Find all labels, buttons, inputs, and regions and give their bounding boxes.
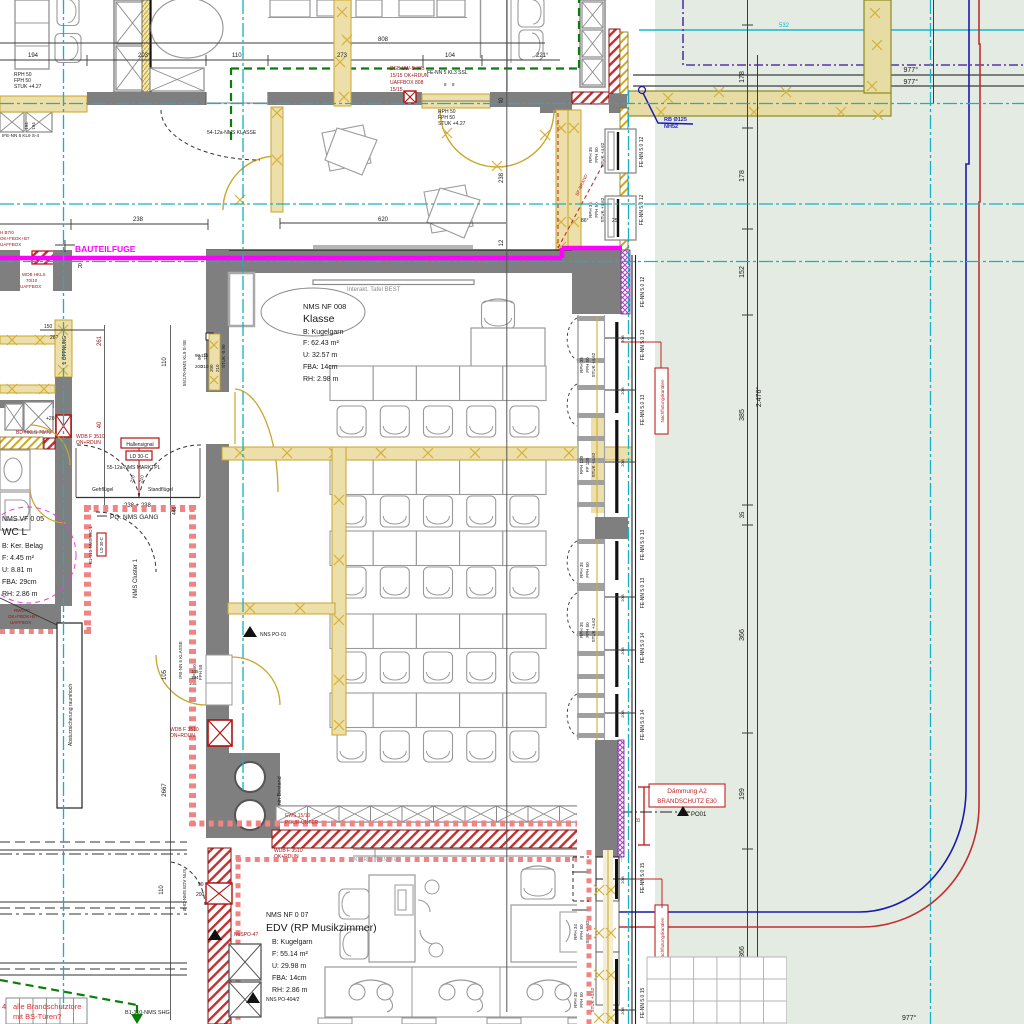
svg-text:105: 105 <box>162 669 168 680</box>
svg-text:Nachflutungskanälen: Nachflutungskanälen <box>660 379 665 422</box>
svg-text:Interakt. Tafel BEST: Interakt. Tafel BEST <box>347 287 401 293</box>
svg-text:STUK +4.62: STUK +4.62 <box>600 197 605 222</box>
svg-text:104: 104 <box>445 53 456 59</box>
svg-text:Klasse: Klasse <box>303 313 335 325</box>
svg-text:FE-NN 5.0 15: FE-NN 5.0 15 <box>640 863 646 894</box>
svg-text:B1-110-NMS SHG: B1-110-NMS SHG <box>125 1010 170 1016</box>
svg-text:152: 152 <box>739 266 746 278</box>
svg-text:UAFFBOX: UAFFBOX <box>20 284 41 289</box>
svg-text:FPH 50: FPH 50 <box>198 664 203 680</box>
svg-text:20|8: 20|8 <box>621 387 625 394</box>
svg-text:20|8: 20|8 <box>621 1007 625 1014</box>
svg-text:FBA: 29cm: FBA: 29cm <box>2 579 37 586</box>
svg-text:40: 40 <box>97 421 103 428</box>
svg-text:STUK +4.62: STUK +4.62 <box>600 142 605 167</box>
svg-text:BRANDSCHUTZ E30: BRANDSCHUTZ E30 <box>657 798 717 805</box>
svg-text:B: Ker. Belag: B: Ker. Belag <box>2 543 43 550</box>
svg-text:OK+FBOK+B7: OK+FBOK+B7 <box>0 236 30 241</box>
svg-text:RH: 2.86 m: RH: 2.86 m <box>2 591 38 598</box>
svg-text:200: 200 <box>196 892 205 898</box>
svg-text:NMS NF 0 07: NMS NF 0 07 <box>266 912 309 919</box>
svg-text:U: 8.81 m: U: 8.81 m <box>2 567 33 574</box>
svg-text:FPH 50: FPH 50 <box>585 357 590 373</box>
svg-text:261: 261 <box>97 335 103 346</box>
svg-text:UNTERK. TÜRN M ED: UNTERK. TÜRN M ED <box>350 856 401 863</box>
svg-text:110: 110 <box>232 53 242 59</box>
svg-text:ON+RDUN: ON+RDUN <box>170 733 195 739</box>
svg-text:NNS PO-01: NNS PO-01 <box>260 632 287 638</box>
svg-text:STUK +4.27: STUK +4.27 <box>14 84 42 90</box>
svg-text:UAFFBOX 808: UAFFBOX 808 <box>390 80 424 86</box>
svg-text:238 + 238: 238 + 238 <box>124 503 152 509</box>
svg-text:FPH 50: FPH 50 <box>585 562 590 578</box>
svg-text:Standflügel: Standflügel <box>148 487 173 493</box>
svg-text:90: 90 <box>195 353 201 358</box>
svg-text:EDV (RP Musikzimmer): EDV (RP Musikzimmer) <box>266 922 377 934</box>
svg-text:55-12a-NMS MARKTPL: 55-12a-NMS MARKTPL <box>107 465 161 471</box>
svg-text:221°: 221° <box>536 53 549 59</box>
svg-text:DSB UW-B-WB: DSB UW-B-WB <box>390 66 425 72</box>
svg-text:FBA: 14cm: FBA: 14cm <box>272 975 307 982</box>
svg-text:FPH 50: FPH 50 <box>579 924 584 940</box>
svg-text:35: 35 <box>740 511 746 518</box>
svg-text:+20: +20 <box>46 416 55 422</box>
svg-text:194: 194 <box>28 53 39 59</box>
svg-text:20|8: 20|8 <box>621 335 625 342</box>
svg-text:FPH 50: FPH 50 <box>585 622 590 638</box>
svg-text:R: R <box>78 264 83 270</box>
svg-text:200: 200 <box>209 364 214 372</box>
svg-text:NMS NF 008: NMS NF 008 <box>303 302 346 311</box>
svg-text:RB Ø125: RB Ø125 <box>664 117 687 123</box>
svg-text:BD HKLS 70/70: BD HKLS 70/70 <box>16 430 52 436</box>
svg-text:199: 199 <box>739 788 746 800</box>
svg-text:1 ÖFFNUNG: 1 ÖFFNUNG <box>61 335 68 364</box>
svg-text:FE-NN 5.0 12: FE-NN 5.0 12 <box>640 277 646 308</box>
svg-text:4: 4 <box>2 1002 6 1011</box>
svg-text:FE-NN 5.0 14: FE-NN 5.0 14 <box>640 710 646 741</box>
svg-text:238: 238 <box>499 172 505 183</box>
svg-text:U: 29.98 m: U: 29.98 m <box>272 963 306 970</box>
svg-text:26?: 26? <box>50 335 59 341</box>
svg-text:178: 178 <box>739 170 746 182</box>
svg-text:FE-NN 5.0 13: FE-NN 5.0 13 <box>640 530 646 561</box>
svg-text:70/10: 70/10 <box>26 278 38 283</box>
svg-text:FP 120: FP 120 <box>585 457 590 472</box>
svg-text:110: 110 <box>162 357 168 367</box>
svg-text:SIUK +4.62: SIUK +4.62 <box>585 920 590 944</box>
svg-text:15/15 OK+RDUN: 15/15 OK+RDUN <box>390 73 429 79</box>
svg-text:2667: 2667 <box>162 783 168 797</box>
svg-text:WC L: WC L <box>2 527 27 538</box>
svg-text:20|8: 20|8 <box>621 647 625 654</box>
svg-text:110: 110 <box>201 353 209 358</box>
svg-text:LD 30-C: LD 30-C <box>130 454 149 460</box>
svg-text:150: 150 <box>44 324 53 330</box>
svg-text:FE-NN 5.0 13: FE-NN 5.0 13 <box>640 578 646 609</box>
svg-text:178: 178 <box>739 71 746 83</box>
svg-text:FE-NN 5.0 12: FE-NN 5.0 12 <box>640 330 646 361</box>
svg-text:UAFFBOX: UAFFBOX <box>0 242 21 247</box>
svg-text:15/15: 15/15 <box>390 87 403 93</box>
svg-text:203°: 203° <box>138 53 151 59</box>
svg-text:B: Kugelgarn: B: Kugelgarn <box>272 939 313 946</box>
svg-text:STUK +4.62: STUK +4.62 <box>591 452 596 477</box>
svg-text:20|8: 20|8 <box>621 459 625 466</box>
svg-text:BAUTEILFUGE: BAUTEILFUGE <box>75 244 136 254</box>
svg-text:F: 4.45 m²: F: 4.45 m² <box>2 555 35 562</box>
svg-text:273: 273 <box>337 53 348 59</box>
svg-text:977°: 977° <box>904 78 919 86</box>
svg-text:194: 194 <box>24 122 29 130</box>
svg-text:FPH 50: FPH 50 <box>594 147 599 163</box>
svg-text:RH: 2.86 m: RH: 2.86 m <box>272 987 308 994</box>
svg-text:B: Kugelgarn: B: Kugelgarn <box>303 329 344 336</box>
svg-text:20|8: 20|8 <box>621 594 625 601</box>
svg-text:12: 12 <box>499 239 505 246</box>
svg-text:NuSPO-4?: NuSPO-4? <box>234 932 258 938</box>
svg-text:RPH 35: RPH 35 <box>573 992 578 1008</box>
svg-text:105: 105 <box>191 669 199 674</box>
svg-text:194: 194 <box>31 122 36 130</box>
svg-text:977°: 977° <box>902 1014 917 1022</box>
svg-text:alle Brandschutztore: alle Brandschutztore <box>13 1002 81 1011</box>
svg-text:mit BS-Türen?: mit BS-Türen? <box>13 1012 61 1021</box>
svg-text:55/170-NMS KL9 S-SE: 55/170-NMS KL9 S-SE <box>182 340 187 386</box>
svg-text:RPH 35: RPH 35 <box>579 357 584 373</box>
svg-text:Dämmung A2: Dämmung A2 <box>667 788 707 795</box>
svg-text:PO01: PO01 <box>691 812 707 818</box>
svg-text:WDB HKLS: WDB HKLS <box>22 272 46 277</box>
svg-text:OK+FBOK+B?: OK+FBOK+B? <box>8 614 38 619</box>
svg-text:STUK -0.90: STUK -0.90 <box>221 344 226 368</box>
svg-text:Absturzsicherung raumhoch: Absturzsicherung raumhoch <box>68 684 74 746</box>
svg-text:STUK +4.62: STUK +4.62 <box>590 987 595 1012</box>
svg-text:RPH 34: RPH 34 <box>573 924 578 940</box>
svg-text:UAFFBOX: UAFFBOX <box>10 620 31 625</box>
svg-text:PQ. NMS GANG: PQ. NMS GANG <box>110 514 158 521</box>
svg-text:90: 90 <box>198 882 204 888</box>
svg-text:20|8: 20|8 <box>621 876 625 883</box>
svg-text:RPH 35: RPH 35 <box>579 562 584 578</box>
svg-text:210: 210 <box>201 364 209 369</box>
svg-text:FBA: 14cm: FBA: 14cm <box>303 364 338 371</box>
svg-text:RH: 2.98 m: RH: 2.98 m <box>303 376 339 383</box>
svg-text:FE-NN 5.0 13: FE-NN 5.0 13 <box>640 395 646 426</box>
svg-text:110: 110 <box>159 885 165 895</box>
svg-text:B1-110-NMS WC L: B1-110-NMS WC L <box>88 525 93 564</box>
svg-text:366: 366 <box>739 946 746 958</box>
svg-text:366: 366 <box>739 629 746 641</box>
svg-text:385: 385 <box>739 409 746 421</box>
svg-text:20|8: 20|8 <box>621 710 625 717</box>
svg-text:FPH 50: FPH 50 <box>579 992 584 1008</box>
svg-text:U: 32.57 m: U: 32.57 m <box>303 352 337 359</box>
svg-text:Nachflutungskanälen: Nachflutungskanälen <box>660 917 665 960</box>
svg-text:RPH 120: RPH 120 <box>579 455 584 474</box>
svg-text:F: 55.14 m²: F: 55.14 m² <box>272 951 308 958</box>
svg-text:RPH 35: RPH 35 <box>579 622 584 638</box>
svg-text:B: B <box>636 818 642 822</box>
svg-text:808: 808 <box>378 37 389 43</box>
svg-text:54-12a-NMS KLASSE: 54-12a-NMS KLASSE <box>207 130 257 136</box>
svg-text:25: 25 <box>612 218 618 224</box>
svg-text:EWS 15/10: EWS 15/10 <box>285 813 311 819</box>
svg-text:F: 62.43 m²: F: 62.43 m² <box>303 340 339 347</box>
svg-text:86°: 86° <box>581 218 589 224</box>
svg-text:FE-NN 5.0 15: FE-NN 5.0 15 <box>640 988 646 1019</box>
svg-text:620: 620 <box>378 217 389 223</box>
svg-text:Hallensignal: Hallensignal <box>126 442 153 448</box>
svg-text:446: 446 <box>172 506 178 515</box>
svg-text:NMS Cluster 1: NMS Cluster 1 <box>133 558 139 598</box>
svg-text:H B7/0: H B7/0 <box>0 230 14 235</box>
svg-text:FE-NN 5.0 12: FE-NN 5.0 12 <box>639 137 645 168</box>
svg-text:194: 194 <box>191 675 199 680</box>
svg-text:NH52: NH52 <box>664 124 678 130</box>
svg-text:IFE-NN 5 KL9 S-4: IFE-NN 5 KL9 S-4 <box>2 133 39 138</box>
svg-text:FE-NN 5.0 12: FE-NN 5.0 12 <box>639 195 645 226</box>
svg-text:Gehflügel: Gehflügel <box>92 487 113 493</box>
svg-text:2.476°: 2.476° <box>755 387 763 408</box>
svg-text:IFB-NN 5 KLASSE: IFB-NN 5 KLASSE <box>178 641 183 679</box>
svg-text:STUK +4.62: STUK +4.62 <box>591 617 596 642</box>
svg-text:STUK +4.62: STUK +4.62 <box>591 352 596 377</box>
svg-text:POUR-UNTER: POUR-UNTER <box>285 820 319 826</box>
svg-text:RPH 35: RPH 35 <box>588 147 593 163</box>
svg-text:977°: 977° <box>904 66 919 74</box>
svg-text:NNS PO-404/2: NNS PO-404/2 <box>266 997 300 1003</box>
svg-text:FE-NN 5 KL3 SSL: FE-NN 5 KL3 SSL <box>427 70 468 76</box>
svg-text:FE-NN 5.0 14: FE-NN 5.0 14 <box>640 633 646 664</box>
svg-text:238: 238 <box>133 217 144 223</box>
svg-text:Ø-ID-NMS EDV NUS: Ø-ID-NMS EDV NUS <box>182 869 187 911</box>
svg-text:NMS VF 0 05: NMS VF 0 05 <box>2 516 44 523</box>
svg-text:210: 210 <box>215 364 220 372</box>
svg-text:532: 532 <box>779 23 790 29</box>
svg-text:STUK +4.27: STUK +4.27 <box>438 121 466 127</box>
svg-text:LD 30-C: LD 30-C <box>99 537 104 553</box>
